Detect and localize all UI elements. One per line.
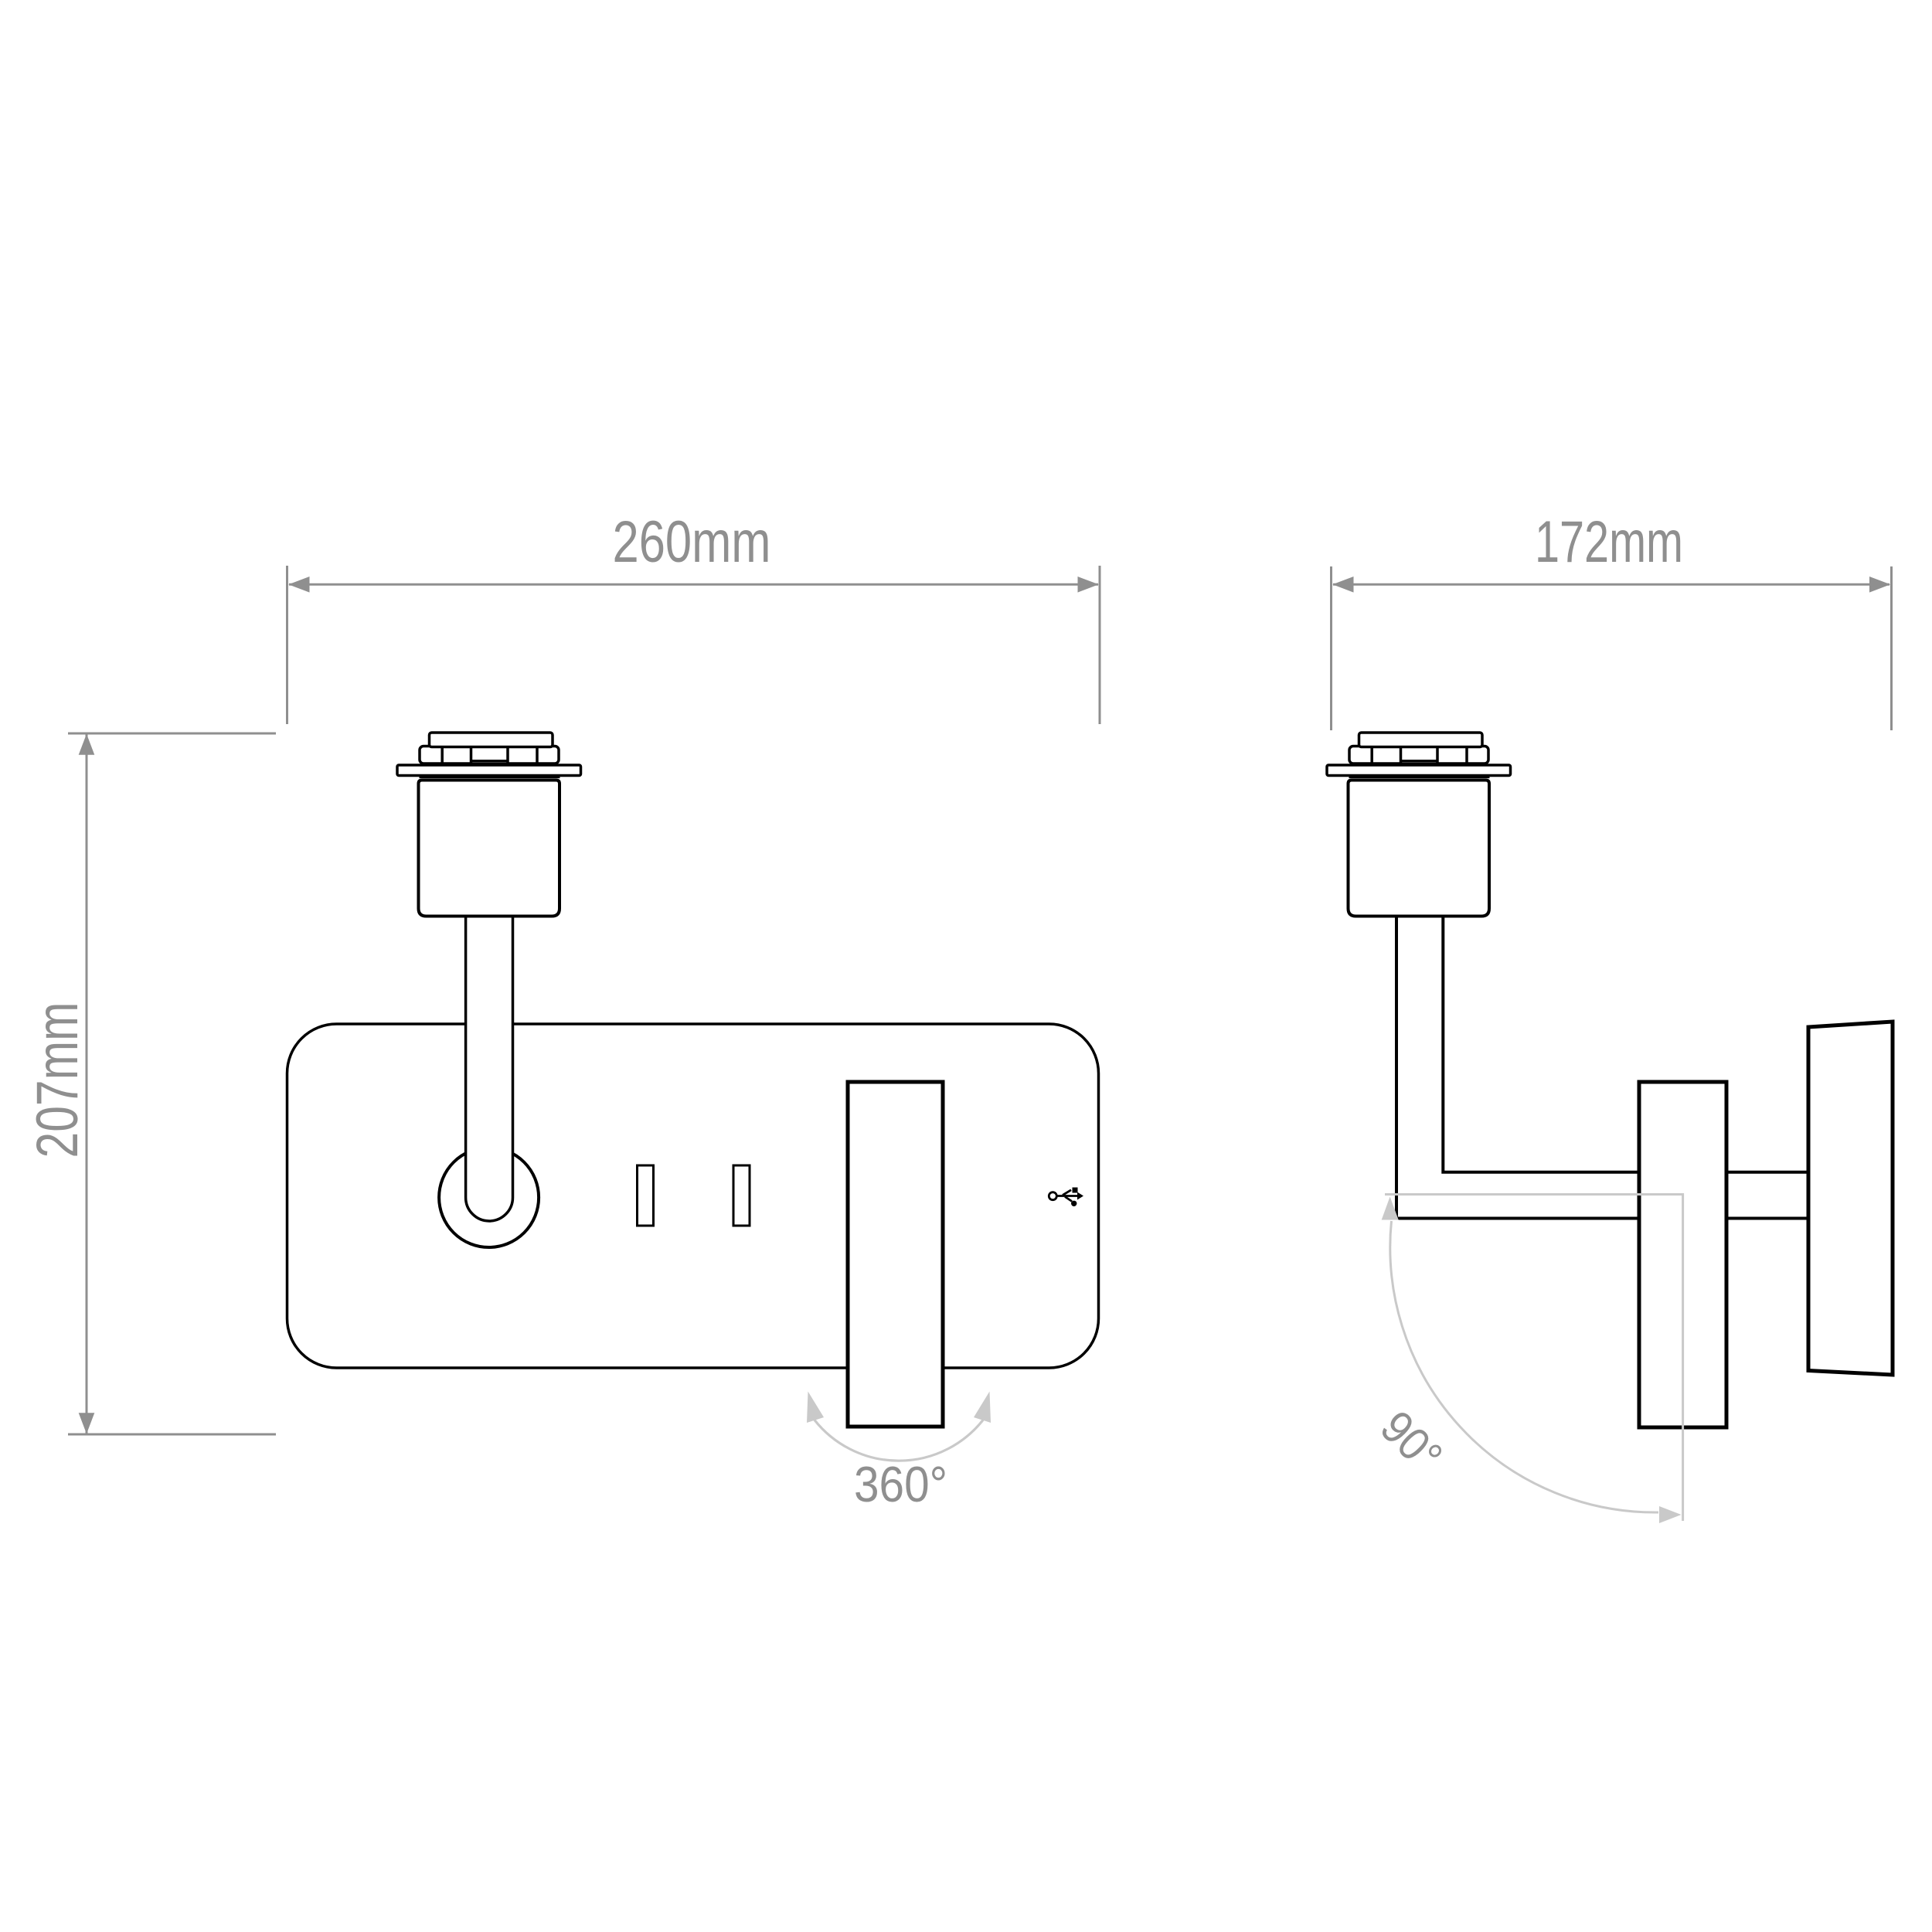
svg-text:360°: 360° bbox=[854, 1456, 947, 1512]
svg-text:207mm: 207mm bbox=[25, 1002, 90, 1158]
svg-text:172mm: 172mm bbox=[1535, 509, 1683, 575]
svg-text:260mm: 260mm bbox=[613, 509, 771, 575]
